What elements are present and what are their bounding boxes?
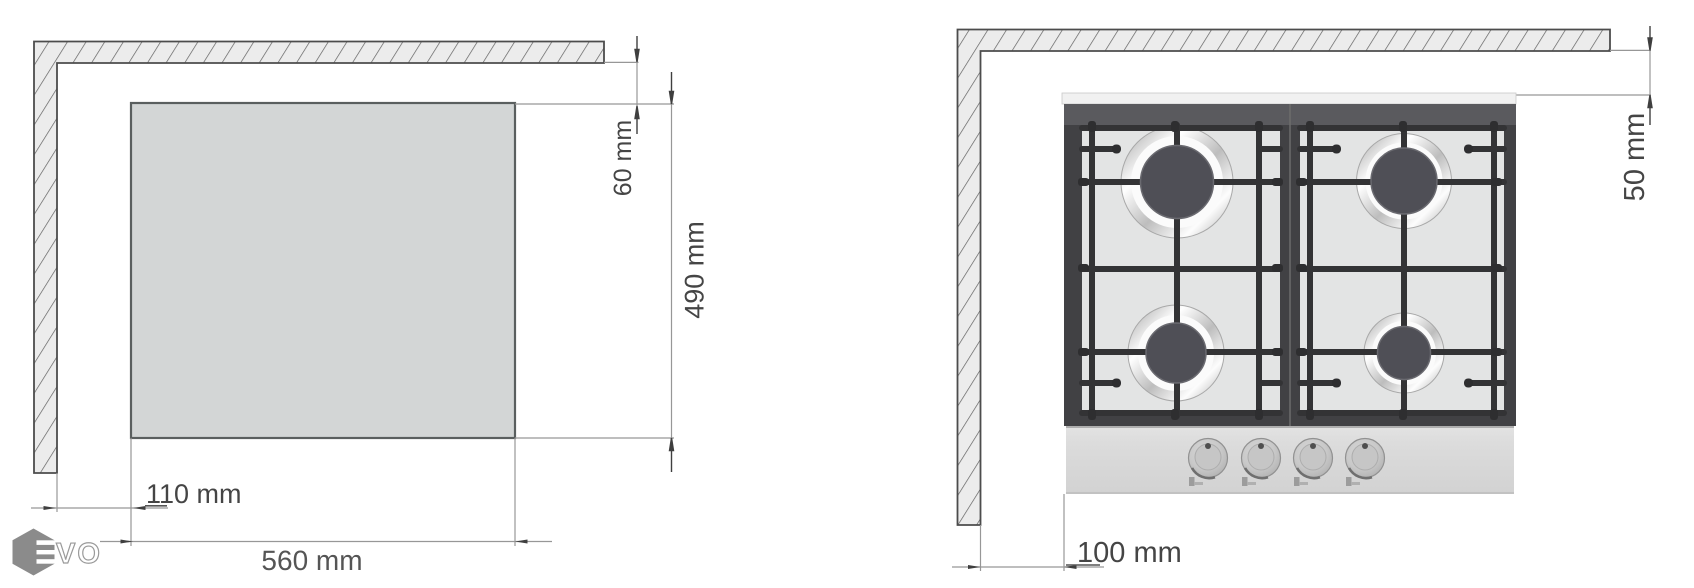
svg-text:60 mm: 60 mm <box>609 120 637 196</box>
svg-text:560 mm: 560 mm <box>261 545 362 576</box>
svg-text:490 mm: 490 mm <box>679 221 709 319</box>
svg-text:50 mm: 50 mm <box>1619 113 1651 202</box>
svg-text:110 mm: 110 mm <box>146 479 242 509</box>
svg-text:VO: VO <box>56 538 102 570</box>
